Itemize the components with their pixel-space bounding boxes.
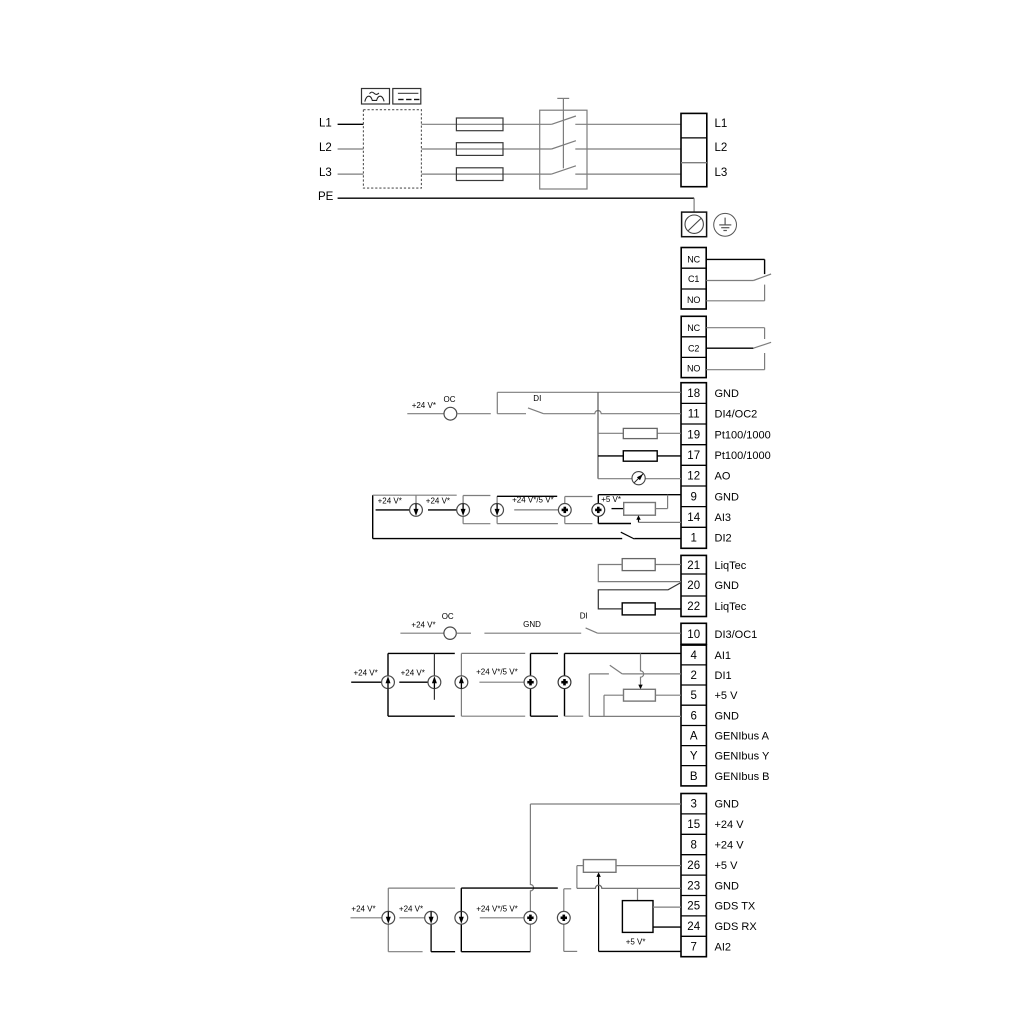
svg-text:+24 V*: +24 V* bbox=[354, 668, 378, 677]
svg-text:6: 6 bbox=[690, 710, 696, 722]
svg-text:7: 7 bbox=[690, 942, 696, 954]
svg-text:18: 18 bbox=[687, 388, 700, 400]
svg-text:+5 V*: +5 V* bbox=[601, 495, 621, 504]
svg-text:DI: DI bbox=[533, 394, 541, 403]
svg-text:17: 17 bbox=[687, 450, 700, 462]
svg-text:20: 20 bbox=[687, 580, 700, 592]
svg-text:12: 12 bbox=[687, 471, 700, 483]
svg-text:DI1: DI1 bbox=[715, 670, 732, 682]
svg-text:GND: GND bbox=[715, 491, 740, 503]
svg-text:L2: L2 bbox=[715, 142, 728, 154]
svg-text:GDS TX: GDS TX bbox=[715, 901, 756, 913]
svg-text:GDS RX: GDS RX bbox=[715, 921, 758, 933]
svg-text:NO: NO bbox=[687, 295, 701, 305]
svg-text:9: 9 bbox=[690, 491, 696, 503]
svg-text:OC: OC bbox=[444, 395, 456, 404]
svg-text:5: 5 bbox=[690, 690, 696, 702]
svg-text:+24 V*/5 V*: +24 V*/5 V* bbox=[512, 495, 554, 504]
svg-text:+24 V*: +24 V* bbox=[411, 620, 435, 629]
svg-text:22: 22 bbox=[687, 601, 700, 613]
svg-text:GENIbus Y: GENIbus Y bbox=[715, 751, 770, 763]
svg-text:+24 V*: +24 V* bbox=[351, 904, 375, 913]
svg-text:OC: OC bbox=[442, 612, 454, 621]
svg-text:B: B bbox=[690, 771, 698, 783]
svg-text:AI3: AI3 bbox=[715, 512, 732, 524]
svg-text:C2: C2 bbox=[688, 343, 700, 353]
svg-text:14: 14 bbox=[687, 512, 700, 524]
svg-text:+5 V: +5 V bbox=[715, 860, 739, 872]
svg-text:Y: Y bbox=[690, 751, 698, 763]
svg-text:GND: GND bbox=[715, 710, 740, 722]
svg-text:C1: C1 bbox=[688, 274, 700, 284]
svg-text:GENIbus B: GENIbus B bbox=[715, 771, 770, 783]
svg-text:AO: AO bbox=[715, 471, 731, 483]
svg-text:L1: L1 bbox=[715, 118, 728, 130]
svg-text:AI1: AI1 bbox=[715, 650, 732, 662]
svg-text:19: 19 bbox=[687, 429, 700, 441]
svg-text:15: 15 bbox=[687, 819, 700, 831]
svg-text:3: 3 bbox=[690, 799, 696, 811]
svg-text:21: 21 bbox=[687, 560, 700, 572]
svg-text:L1: L1 bbox=[319, 117, 332, 129]
svg-text:24: 24 bbox=[687, 921, 700, 933]
svg-text:+24 V*: +24 V* bbox=[399, 904, 423, 913]
svg-text:+24 V*/5 V*: +24 V*/5 V* bbox=[476, 668, 518, 677]
svg-text:DI3/OC1: DI3/OC1 bbox=[715, 629, 758, 641]
svg-text:LiqTec: LiqTec bbox=[715, 601, 747, 613]
svg-text:+24 V: +24 V bbox=[715, 840, 745, 852]
svg-text:+24 V*: +24 V* bbox=[401, 668, 425, 677]
svg-text:GND: GND bbox=[715, 580, 740, 592]
svg-text:L2: L2 bbox=[319, 142, 332, 154]
svg-text:L3: L3 bbox=[715, 167, 728, 179]
svg-text:DI2: DI2 bbox=[715, 533, 732, 545]
svg-text:GND: GND bbox=[715, 388, 740, 400]
svg-text:23: 23 bbox=[687, 880, 700, 892]
svg-text:Pt100/1000: Pt100/1000 bbox=[715, 429, 771, 441]
svg-text:GND: GND bbox=[715, 799, 740, 811]
svg-text:LiqTec: LiqTec bbox=[715, 560, 747, 572]
svg-text:2: 2 bbox=[690, 670, 696, 682]
svg-text:NC: NC bbox=[687, 255, 700, 265]
svg-text:+5 V*: +5 V* bbox=[626, 938, 646, 947]
svg-text:8: 8 bbox=[690, 840, 696, 852]
svg-text:+24 V*/5 V*: +24 V*/5 V* bbox=[476, 904, 518, 913]
svg-text:+24 V*: +24 V* bbox=[412, 401, 436, 410]
svg-text:DI: DI bbox=[580, 611, 588, 620]
svg-text:GENIbus A: GENIbus A bbox=[715, 731, 770, 743]
svg-text:26: 26 bbox=[687, 860, 700, 872]
svg-text:GND: GND bbox=[523, 620, 541, 629]
svg-text:10: 10 bbox=[687, 629, 700, 641]
svg-text:4: 4 bbox=[690, 650, 697, 662]
svg-text:DI4/OC2: DI4/OC2 bbox=[715, 409, 758, 421]
svg-text:11: 11 bbox=[688, 409, 700, 421]
svg-text:GND: GND bbox=[715, 880, 740, 892]
svg-text:+24 V*: +24 V* bbox=[426, 496, 450, 505]
svg-text:L3: L3 bbox=[319, 167, 332, 179]
svg-text:PE: PE bbox=[318, 191, 334, 203]
svg-text:A: A bbox=[690, 731, 698, 743]
svg-text:AI2: AI2 bbox=[715, 942, 732, 954]
svg-text:+24 V*: +24 V* bbox=[378, 496, 402, 505]
svg-text:NO: NO bbox=[687, 364, 701, 374]
svg-text:Pt100/1000: Pt100/1000 bbox=[715, 450, 771, 462]
svg-text:25: 25 bbox=[687, 901, 700, 913]
svg-text:NC: NC bbox=[687, 323, 700, 333]
svg-text:+5 V: +5 V bbox=[715, 690, 739, 702]
svg-text:+24 V: +24 V bbox=[715, 819, 745, 831]
svg-text:1: 1 bbox=[690, 533, 696, 545]
